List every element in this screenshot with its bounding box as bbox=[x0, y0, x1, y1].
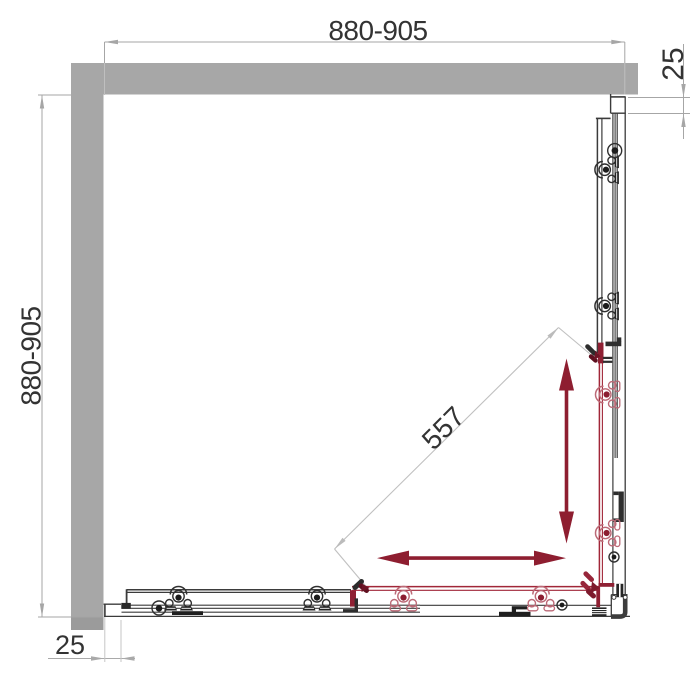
svg-text:880-905: 880-905 bbox=[328, 15, 427, 46]
svg-text:880-905: 880-905 bbox=[16, 306, 47, 405]
svg-text:25: 25 bbox=[55, 630, 85, 660]
svg-text:25: 25 bbox=[657, 47, 690, 80]
